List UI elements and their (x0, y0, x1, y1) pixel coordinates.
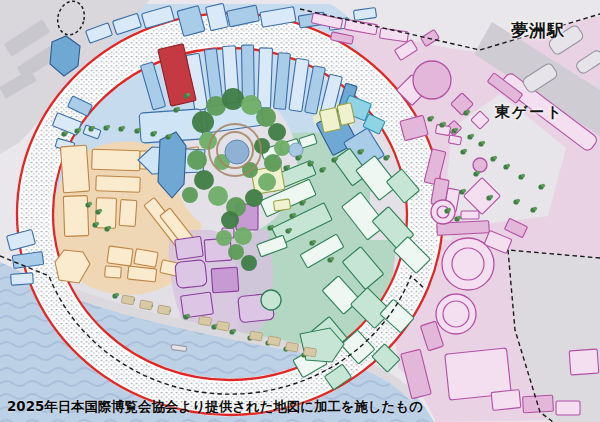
station-label: 夢洲駅 (511, 19, 565, 42)
expo-site-map: 夢洲駅 東ゲート 2025年日本国際博覧会協会より提供された地図に加工を施したも… (0, 0, 600, 422)
map-source-caption: 2025年日本国際博覧会協会より提供された地図に加工を施したもの (7, 398, 423, 416)
map-canvas (0, 0, 600, 422)
east-gate-label: 東ゲート (495, 103, 564, 122)
